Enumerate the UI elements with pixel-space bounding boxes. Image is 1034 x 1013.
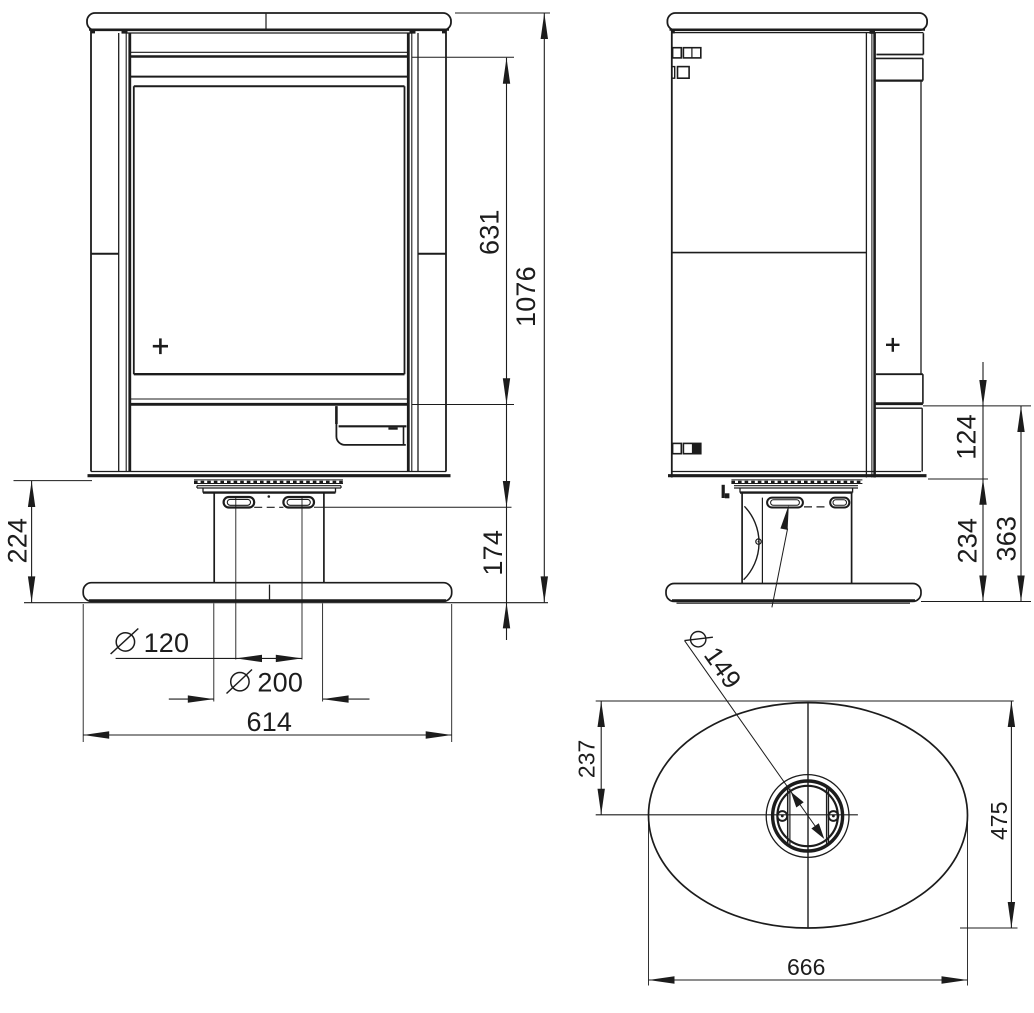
svg-text:1076: 1076 [511,266,541,327]
svg-text:631: 631 [475,209,505,255]
svg-text:363: 363 [992,516,1022,562]
svg-text:224: 224 [3,518,33,564]
svg-text:666: 666 [787,954,825,980]
svg-text:174: 174 [478,530,508,576]
svg-text:237: 237 [574,740,600,778]
svg-text:475: 475 [986,802,1012,840]
svg-text:234: 234 [953,518,983,564]
svg-text:614: 614 [247,707,293,737]
svg-text:120: 120 [144,628,190,658]
svg-text:149: 149 [698,641,747,694]
svg-text:124: 124 [952,414,982,460]
svg-text:200: 200 [257,668,303,698]
